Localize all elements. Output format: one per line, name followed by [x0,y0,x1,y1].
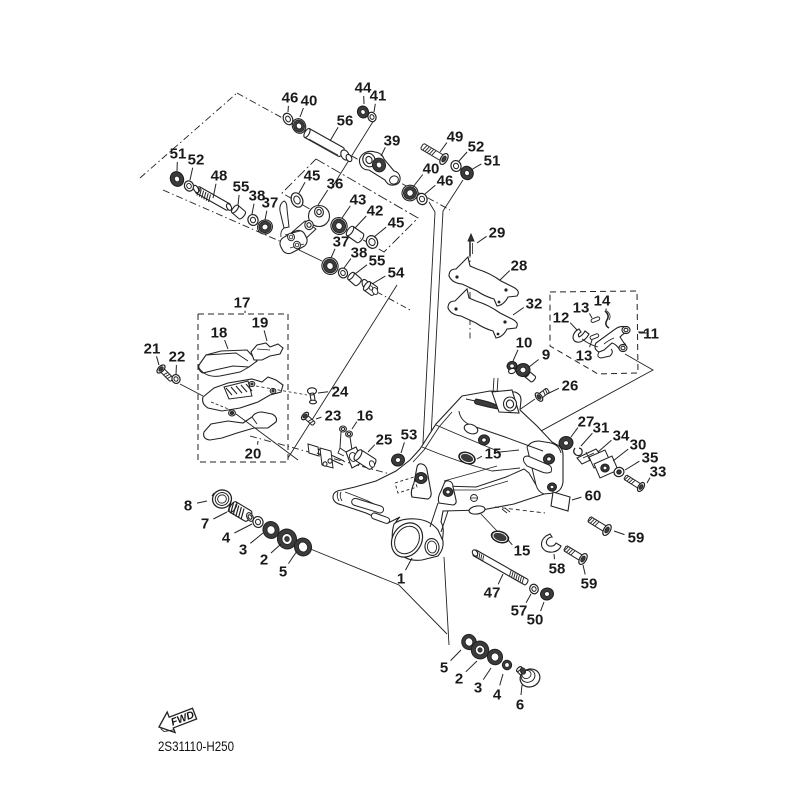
svg-text:46: 46 [437,172,454,189]
svg-text:45: 45 [388,214,405,231]
svg-text:18: 18 [211,324,228,341]
svg-text:34: 34 [613,427,630,444]
svg-text:32: 32 [526,295,543,312]
svg-text:46: 46 [282,89,299,106]
svg-text:55: 55 [233,178,250,195]
svg-text:42: 42 [367,202,384,219]
svg-text:29: 29 [489,224,506,241]
svg-text:58: 58 [549,560,566,577]
svg-text:53: 53 [401,426,418,443]
svg-text:59: 59 [581,575,598,592]
svg-text:6: 6 [516,696,524,713]
svg-text:13: 13 [576,347,593,364]
svg-text:60: 60 [585,487,602,504]
svg-text:52: 52 [468,138,485,155]
svg-text:48: 48 [211,167,228,184]
svg-text:5: 5 [279,563,287,580]
svg-text:8: 8 [184,497,192,514]
svg-text:3: 3 [239,541,247,558]
svg-text:1: 1 [397,570,405,587]
svg-text:15: 15 [485,445,502,462]
svg-text:28: 28 [511,257,528,274]
svg-text:50: 50 [527,611,544,628]
svg-text:10: 10 [516,334,533,351]
svg-text:16: 16 [357,407,374,424]
svg-text:5: 5 [440,659,448,676]
svg-text:49: 49 [447,128,464,145]
svg-text:20: 20 [245,445,262,462]
svg-text:41: 41 [370,87,387,104]
svg-text:51: 51 [484,152,501,169]
svg-text:14: 14 [594,292,611,309]
svg-text:57: 57 [511,602,528,619]
svg-text:33: 33 [650,463,667,480]
svg-text:4: 4 [222,529,231,546]
svg-text:9: 9 [542,346,550,363]
svg-text:2: 2 [260,551,268,568]
svg-text:15: 15 [514,542,531,559]
svg-text:23: 23 [325,407,342,424]
svg-text:36: 36 [327,175,344,192]
svg-text:13: 13 [573,299,590,316]
svg-text:37: 37 [262,194,279,211]
svg-text:26: 26 [562,377,579,394]
svg-text:43: 43 [350,191,367,208]
svg-text:2S31110-H250: 2S31110-H250 [158,739,234,754]
svg-text:22: 22 [169,348,186,365]
svg-text:52: 52 [188,151,205,168]
svg-text:4: 4 [493,686,502,703]
svg-text:19: 19 [252,314,269,331]
svg-text:31: 31 [593,419,610,436]
svg-text:38: 38 [351,244,368,261]
svg-text:37: 37 [333,233,350,250]
svg-text:21: 21 [144,340,161,357]
svg-text:56: 56 [337,112,354,129]
svg-text:12: 12 [553,309,570,326]
svg-text:51: 51 [170,145,187,162]
svg-text:45: 45 [304,167,321,184]
svg-text:7: 7 [201,515,209,532]
svg-text:40: 40 [301,92,318,109]
svg-text:3: 3 [474,679,482,696]
svg-text:55: 55 [369,252,386,269]
svg-text:2: 2 [455,670,463,687]
svg-text:25: 25 [376,431,393,448]
svg-text:11: 11 [643,325,659,342]
svg-text:47: 47 [484,584,501,601]
svg-text:39: 39 [384,132,401,149]
svg-text:54: 54 [388,264,405,281]
svg-text:59: 59 [628,529,645,546]
svg-text:24: 24 [332,383,349,400]
svg-text:17: 17 [234,294,251,311]
